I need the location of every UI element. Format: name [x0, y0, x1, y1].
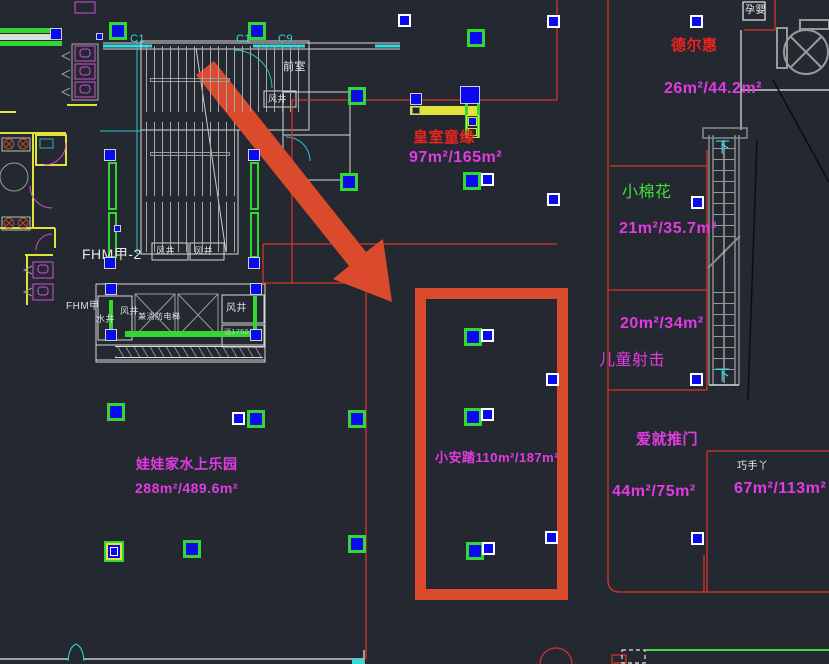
store-name-huangshi: 皇室童缘 [413, 130, 475, 145]
shaft-wind-3: 风井 [120, 307, 139, 316]
device-marker-g [109, 22, 127, 40]
device-marker-g [463, 172, 481, 190]
green-bar-4 [250, 212, 259, 258]
device-marker-g [348, 535, 366, 553]
shaft-wind-4: 风井 [226, 304, 247, 314]
device-marker-p [250, 283, 262, 295]
store-name-aijiutuimen: 爱就推门 [636, 432, 698, 447]
device-marker-p [105, 329, 117, 341]
device-marker-w [691, 196, 704, 209]
stair-handrail-1 [150, 78, 230, 82]
column-structure [777, 20, 829, 74]
store-name-deerhui: 德尔惠 [671, 38, 718, 53]
device-marker-w [232, 412, 245, 425]
elevator-tag-fhm: FHM甲 [66, 302, 100, 312]
shaft-wind-top: 风井 [268, 95, 287, 104]
device-marker-g [248, 22, 266, 40]
stair-handrail-2 [150, 152, 230, 156]
infant-zone-label: 孕婴 [745, 6, 766, 16]
shaft-wind-2: 风井 [194, 247, 213, 256]
door-arch [68, 644, 84, 661]
device-marker-w [398, 14, 411, 27]
stair-treads-middle [146, 122, 238, 196]
device-marker-g [340, 173, 358, 191]
device-marker-g [348, 87, 366, 105]
device-marker-w [482, 542, 495, 555]
device-marker-w [481, 329, 494, 342]
store-area-xiaomianhua: 21m²/35.7m² [619, 221, 717, 237]
device-marker-p [105, 283, 117, 295]
device-marker-s [114, 225, 121, 232]
store-name-wawajia: 娃娃家水上乐园 [136, 457, 238, 471]
device-marker-p [410, 93, 422, 105]
store-name-ertongsheji: 儿童射击 [599, 353, 665, 369]
green-bar-3 [250, 162, 259, 210]
yellow-beam-socket [412, 107, 420, 114]
store-label-xiaoanta: 小安踏110m²/187m² [435, 451, 559, 464]
stair-treads-lower [146, 202, 238, 252]
device-marker-w [481, 408, 494, 421]
yellow-box-blue [468, 117, 477, 126]
front-room-label: 前室 [283, 62, 306, 73]
device-marker-p [248, 257, 260, 269]
cad-canvas[interactable]: 前室C1C1C9风井FHM甲-2风井风井FHM甲水井风井兼消防电梯风井消1750… [0, 0, 829, 664]
boundary-diagonals [748, 80, 829, 400]
store-area-2034: 20m²/34m² [620, 316, 704, 332]
device-marker-s [96, 33, 103, 40]
shaft-wind-1: 风井 [156, 247, 175, 256]
fire-hydrant-note: 消1750 [224, 329, 249, 336]
device-marker-w [690, 373, 703, 386]
device-marker-g [247, 410, 265, 428]
grid-c9: C9 [278, 34, 293, 45]
fire-elevator-label: 兼消防电梯 [138, 313, 181, 321]
device-marker-g [464, 408, 482, 426]
device-marker-p [248, 149, 260, 161]
device-marker-w [545, 531, 558, 544]
device-marker-p [104, 257, 116, 269]
device-marker-p [250, 329, 262, 341]
duct-bar-bottom [0, 41, 62, 46]
device-marker-p [104, 149, 116, 161]
store-area-wawajia: 288m²/489.6m² [135, 481, 238, 495]
device-marker-g [467, 29, 485, 47]
escalator-down-top: 下 [715, 140, 731, 155]
yellow-beam [410, 106, 480, 115]
device-marker-gy [104, 541, 124, 562]
device-marker-w [691, 532, 704, 545]
shaft-water: 水井 [96, 315, 115, 324]
device-marker-p [460, 86, 480, 104]
sink-fixtures [2, 138, 53, 230]
washroom-yellow-walls [0, 105, 97, 305]
device-marker-w [481, 173, 494, 186]
device-marker-w [547, 193, 560, 206]
device-marker-p [50, 28, 62, 40]
store-name-xiaomianhua: 小棉花 [622, 185, 672, 201]
escalator-down-bottom: 下 [715, 368, 731, 383]
store-area-qiaoshouya: 67m²/113m² [734, 481, 826, 497]
device-marker-g [107, 403, 125, 421]
device-marker-g [183, 540, 201, 558]
device-marker-w [690, 15, 703, 28]
device-marker-w [547, 15, 560, 28]
store-area-aijiutuimen: 44m²/75m² [612, 484, 696, 500]
cyan-marker-bottom [352, 659, 364, 664]
store-name-qiaoshouya: 巧手丫 [737, 462, 769, 472]
device-marker-g [348, 410, 366, 428]
store-area-deerhui: 26m²/44.2m² [664, 81, 762, 97]
elevator-hatch-band [115, 346, 263, 358]
grid-c1-a: C1 [130, 34, 145, 45]
device-marker-w [546, 373, 559, 386]
device-marker-g [464, 328, 482, 346]
green-bar-1 [108, 162, 117, 210]
store-area-huangshi: 97m²/165m² [409, 150, 502, 166]
